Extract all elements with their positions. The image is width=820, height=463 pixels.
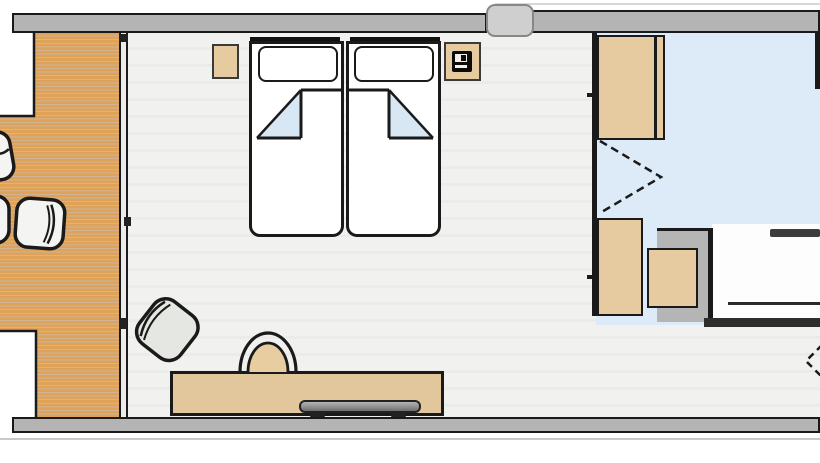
wall-joint-tick-upper	[587, 93, 597, 97]
bottom-outer-line	[0, 438, 820, 440]
bathroom-inner-wall	[708, 228, 713, 325]
wall-joint-tick-lower	[587, 275, 597, 279]
tv-foot-right	[391, 412, 406, 417]
wall-shadow-line	[495, 3, 820, 5]
bottom-wall	[12, 417, 820, 433]
top-wall-left	[12, 13, 487, 33]
nightstand-left	[212, 44, 239, 79]
wardrobe-door-split	[654, 37, 657, 138]
tv-foot-left	[310, 412, 325, 417]
bathtub-edge-line	[728, 302, 820, 305]
telephone-icon-detail	[461, 55, 466, 61]
floor-plan	[0, 0, 820, 463]
upper-wardrobe	[597, 35, 665, 140]
balcony-deck	[0, 33, 120, 417]
right-wall-stub	[815, 33, 820, 89]
lower-closet	[597, 218, 643, 316]
shower-partition-bar	[770, 229, 820, 237]
drawer-chest	[647, 248, 698, 308]
top-wall-right	[497, 10, 820, 33]
wall-connector	[486, 4, 534, 37]
window-jamb-bottom	[119, 318, 127, 329]
telephone-icon-detail	[455, 65, 467, 68]
window-handle	[124, 217, 131, 226]
pillow-right	[354, 46, 434, 82]
bathroom-bottom-wall	[704, 318, 820, 327]
window-jamb-top	[119, 34, 128, 42]
pillow-left	[258, 46, 338, 82]
telephone-icon	[452, 51, 472, 72]
